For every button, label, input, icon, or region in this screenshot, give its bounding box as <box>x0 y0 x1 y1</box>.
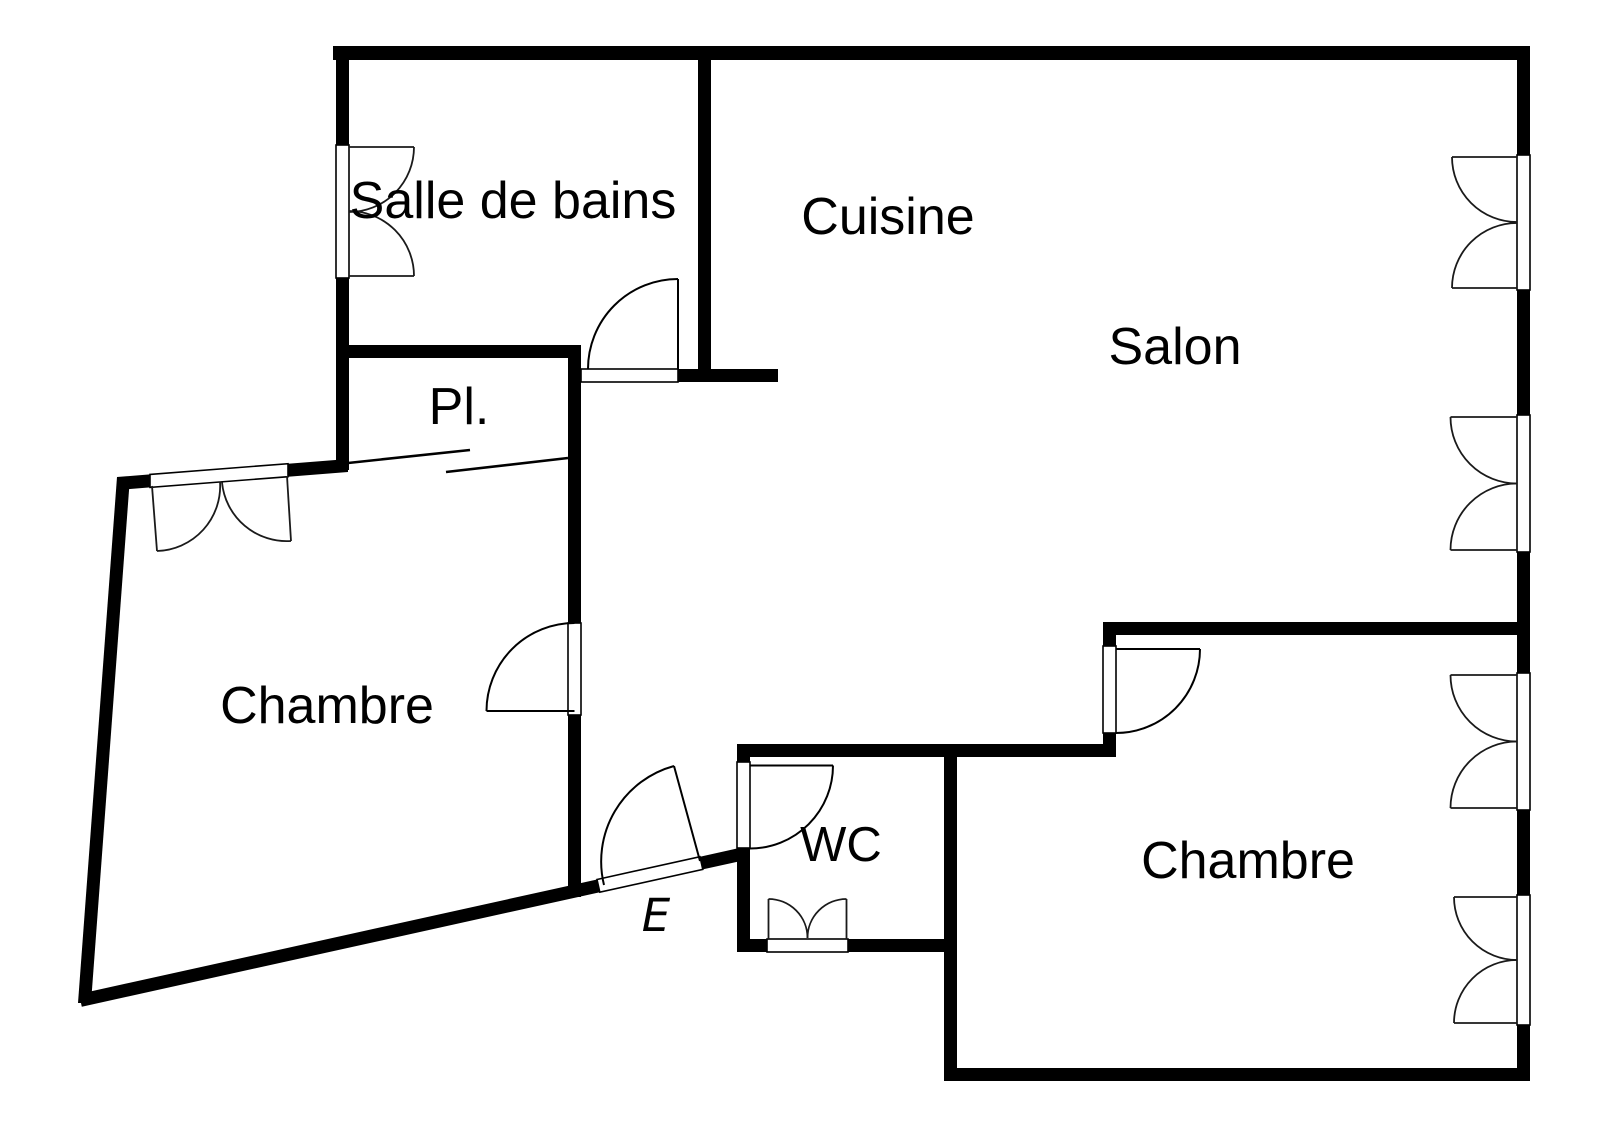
bedroom-right-left-wall-segment <box>1103 733 1116 757</box>
bedroom-right-window-upper-icon <box>1451 673 1531 810</box>
wc-bottom-wall-segment <box>848 939 957 952</box>
bedroom-right-door-icon <box>1103 646 1200 733</box>
wc-window-icon <box>767 899 848 952</box>
bedroom-right-label: Chambre <box>1141 832 1355 890</box>
wc-right-wall <box>944 744 957 1081</box>
top-wall <box>333 46 1530 60</box>
right-wall-segment <box>1517 810 1530 895</box>
bathroom-kitchen-divider-wall <box>698 57 711 382</box>
right-wall-segment <box>1517 552 1530 673</box>
bedroom-right-window-lower-icon <box>1454 895 1530 1025</box>
bathroom-door-icon <box>581 279 678 382</box>
right-wall-segment <box>1517 46 1530 155</box>
entrance-label: E <box>642 889 671 942</box>
kitchen-label: Cuisine <box>801 188 974 246</box>
wc-bottom-wall-segment <box>737 939 767 952</box>
bedroom-left-window-icon <box>150 464 291 551</box>
right-wall-segment <box>1517 290 1530 415</box>
closet-sliding-door-icon <box>348 450 568 472</box>
bathroom-left-wall-segment <box>336 278 349 470</box>
bedroom-left-top-wall-segment <box>288 459 348 477</box>
kitchen-entry-wall-stub <box>678 369 778 382</box>
closet-label: Pl. <box>429 378 490 436</box>
bedroom-left-label: Chambre <box>220 677 434 735</box>
room-labels: Salle de bains Cuisine Salon Pl. Chambre… <box>220 172 1355 942</box>
bottom-wall <box>944 1068 1530 1081</box>
bedroom-right-top-wall <box>1103 622 1530 635</box>
entrance-door-icon <box>597 766 703 892</box>
living-room-label: Salon <box>1109 318 1242 376</box>
wc-top-wall <box>737 744 1116 757</box>
salon-window-lower-icon <box>1451 415 1531 552</box>
salon-window-upper-icon <box>1452 155 1530 290</box>
wc-left-wall-segment <box>737 744 750 762</box>
bathroom-label: Salle de bains <box>350 172 677 230</box>
floor-plan: Salle de bains Cuisine Salon Pl. Chambre… <box>0 0 1600 1130</box>
wc-label: WC <box>800 818 882 872</box>
entrance-diagonal-wall-segment <box>79 880 600 1007</box>
hall-left-wall-segment <box>568 715 581 897</box>
bedroom-right-left-wall-segment <box>1103 622 1116 646</box>
bedroom-left-door-icon <box>487 623 582 715</box>
bathroom-left-wall-segment <box>336 46 349 145</box>
entrance-diagonal-wall-segment <box>700 849 740 870</box>
hall-left-wall-segment <box>568 345 581 623</box>
bathroom-bottom-wall <box>336 345 581 358</box>
wc-left-wall-segment <box>737 848 750 952</box>
bedroom-left-left-wall <box>78 477 130 1003</box>
